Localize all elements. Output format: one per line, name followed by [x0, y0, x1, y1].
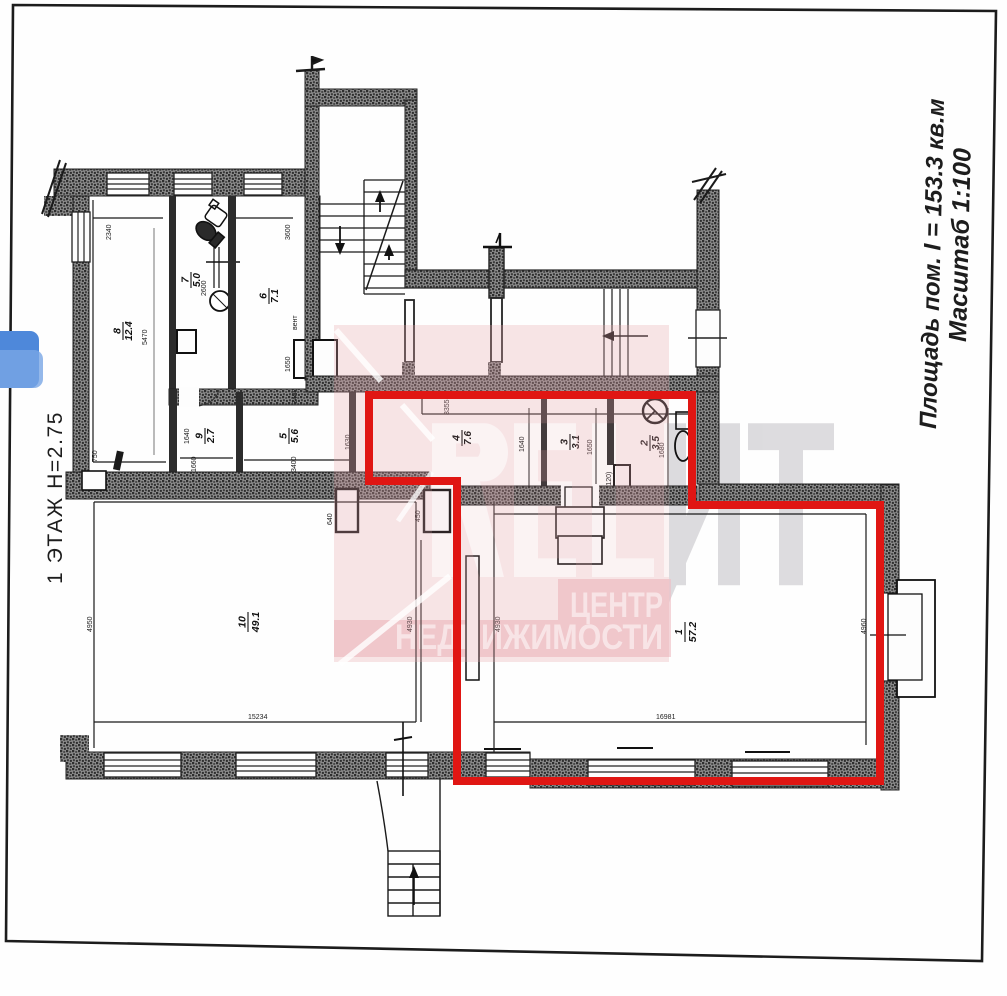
- svg-text:10: 10: [237, 616, 249, 628]
- svg-text:3480: 3480: [292, 388, 299, 404]
- svg-text:49.1: 49.1: [250, 612, 262, 634]
- svg-text:4950: 4950: [87, 616, 94, 632]
- svg-text:15234: 15234: [248, 714, 268, 721]
- svg-text:4960: 4960: [861, 618, 868, 634]
- svg-text:6: 6: [258, 293, 270, 299]
- svg-text:вент: вент: [292, 315, 299, 330]
- svg-text:5.6: 5.6: [290, 429, 301, 443]
- svg-text:5: 5: [278, 433, 290, 439]
- svg-text:1660: 1660: [191, 456, 198, 472]
- svg-text:1: 1: [674, 629, 685, 635]
- svg-text:2.7: 2.7: [206, 429, 217, 444]
- svg-text:2600: 2600: [201, 280, 208, 296]
- svg-text:12.4: 12.4: [124, 321, 135, 341]
- svg-text:3400: 3400: [291, 456, 298, 472]
- svg-text:640: 640: [327, 513, 334, 525]
- svg-text:9: 9: [194, 433, 206, 439]
- svg-text:Масштаб 1:100: Масштаб 1:100: [944, 148, 977, 342]
- svg-text:1640: 1640: [184, 428, 191, 444]
- svg-text:1650: 1650: [285, 356, 292, 372]
- svg-text:5470: 5470: [142, 329, 149, 345]
- svg-text:750: 750: [92, 450, 99, 462]
- svg-text:2340: 2340: [106, 224, 113, 240]
- svg-text:57.2: 57.2: [687, 622, 699, 643]
- svg-text:16981: 16981: [656, 714, 676, 721]
- svg-text:8: 8: [112, 328, 124, 334]
- svg-text:3600: 3600: [285, 224, 292, 240]
- svg-text:7.1: 7.1: [270, 289, 281, 303]
- svg-text:1 ЭТАЖ Н=2.75: 1 ЭТАЖ Н=2.75: [44, 411, 67, 584]
